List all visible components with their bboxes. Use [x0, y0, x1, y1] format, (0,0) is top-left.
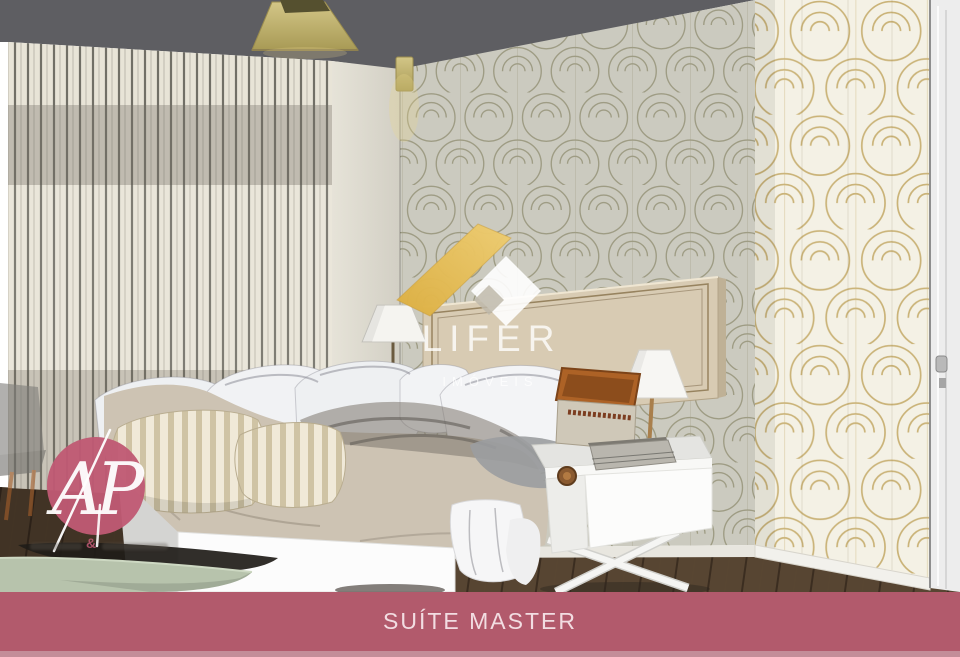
tagline-blur-left [30, 543, 82, 550]
feature-wall [755, 0, 930, 590]
door-handle [936, 356, 947, 372]
interior-door [930, 0, 960, 592]
door-keyhole [939, 378, 946, 388]
caption-text: SUÍTE MASTER [383, 608, 577, 635]
vintage-radio [556, 368, 640, 450]
striped-pillows [112, 410, 346, 513]
brand-monogram: AP [46, 447, 146, 531]
tagline-blur-right [102, 543, 168, 550]
caption-banner: SUÍTE MASTER [0, 592, 960, 657]
tagline-ampersand: & [86, 535, 96, 551]
presentation-slide: AP LIFER IMÓVEIS & SUÍTE MASTER [0, 0, 960, 657]
bedroom-3d-render: AP LIFER IMÓVEIS & [0, 0, 960, 592]
render-canvas: AP [0, 0, 960, 592]
